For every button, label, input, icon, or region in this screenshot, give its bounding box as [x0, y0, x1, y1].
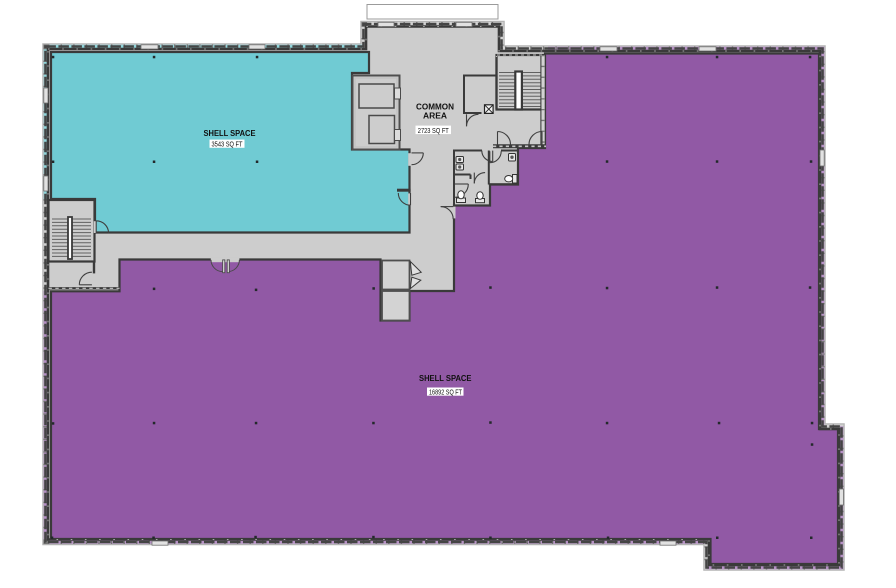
svg-text:AREA: AREA [423, 111, 447, 120]
svg-text:2723 SQ FT: 2723 SQ FT [418, 128, 450, 135]
svg-text:SHELL SPACE: SHELL SPACE [204, 129, 257, 138]
svg-text:16892 SQ FT: 16892 SQ FT [429, 389, 463, 396]
svg-text:3543 SQ FT: 3543 SQ FT [212, 142, 244, 149]
svg-text:COMMON: COMMON [416, 103, 454, 112]
svg-text:SHELL SPACE: SHELL SPACE [419, 374, 472, 383]
